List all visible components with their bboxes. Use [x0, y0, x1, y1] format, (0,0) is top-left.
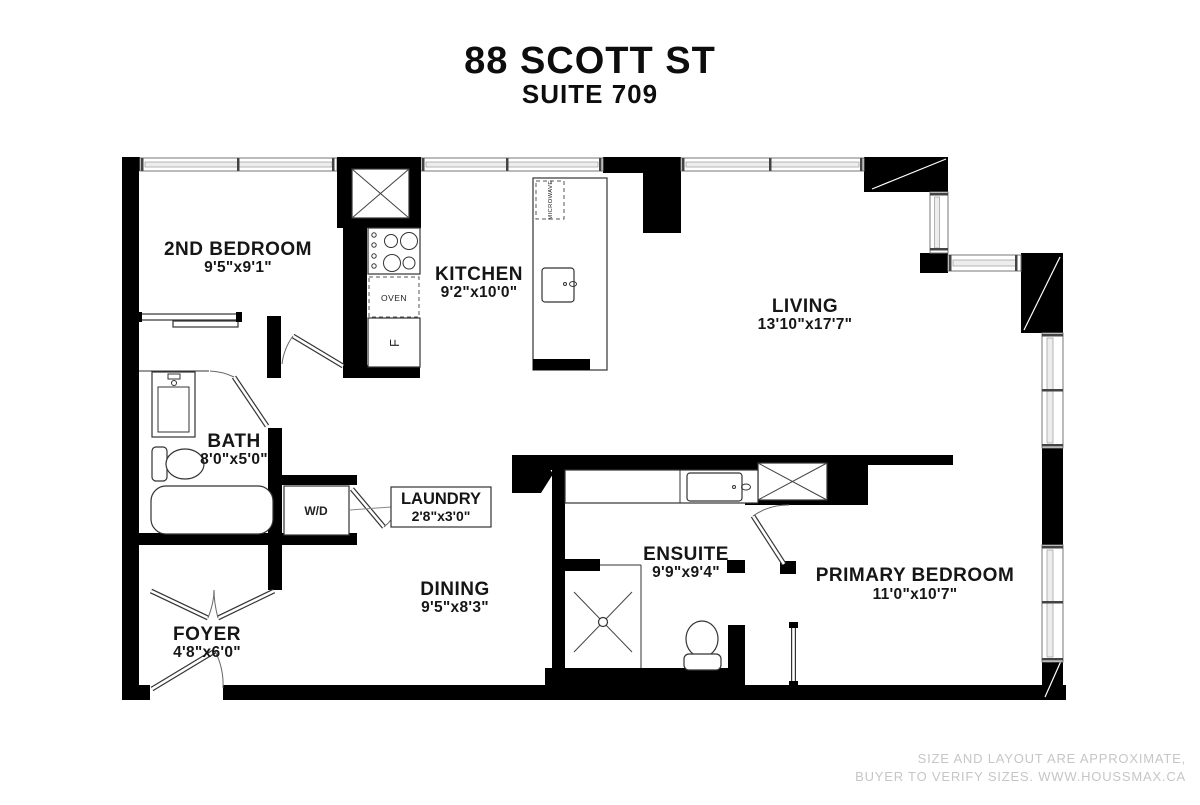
label-foyer: FOYER	[173, 624, 241, 645]
label-primary-bedroom: PRIMARY BEDROOM	[816, 565, 1015, 586]
window-glass	[935, 197, 940, 248]
foyer-closet-door-left	[151, 591, 208, 618]
watermark-line2: BUYER TO VERIFY SIZES. WWW.HOUSSMAX.CA	[855, 769, 1186, 784]
dims-second-bedroom: 9'5"x9'1"	[204, 259, 272, 276]
floor-plan-page: 88 SCOTT ST SUITE 709	[0, 0, 1200, 805]
foyer-closet-door-right	[218, 591, 274, 618]
watermark-line1: SIZE AND LAYOUT ARE APPROXIMATE,	[918, 751, 1186, 766]
dims-ensuite: 9'9"x9'4"	[652, 564, 720, 581]
wall-living-primary	[868, 455, 953, 465]
entry-opening	[150, 685, 223, 700]
label-ensuite: ENSUITE	[643, 544, 729, 565]
microwave-label: MICROWAVE	[548, 180, 554, 219]
wall-east-a	[1042, 448, 1063, 547]
label-kitchen: KITCHEN	[435, 264, 523, 285]
ensuite-toilet-bowl	[686, 621, 718, 657]
wall-laundry-north	[268, 475, 357, 485]
wall-kitchen-west	[343, 228, 367, 368]
ensuite-door	[753, 516, 784, 564]
wall-ensuite-north	[540, 455, 758, 470]
dims-laundry: 2'8"x3'0"	[412, 508, 471, 524]
watermark: SIZE AND LAYOUT ARE APPROXIMATE, BUYER T…	[855, 751, 1186, 784]
dims-kitchen: 9'2"x10'0"	[441, 284, 518, 301]
fridge-label: F	[387, 339, 402, 347]
second-bedroom-door	[293, 336, 343, 366]
stub-shower	[565, 559, 600, 571]
ensuite-sink	[687, 473, 742, 501]
toilet-bowl	[166, 449, 204, 479]
block-east-small	[920, 253, 948, 273]
floor-plan: 88 SCOTT ST SUITE 709	[0, 0, 1200, 805]
label-laundry: LAUNDRY	[401, 490, 481, 508]
page-subtitle: SUITE 709	[522, 79, 658, 109]
label-second-bedroom: 2ND BEDROOM	[164, 239, 312, 260]
wall-closet-stub	[267, 316, 281, 378]
label-dining: DINING	[420, 579, 490, 600]
window-glass	[426, 162, 598, 167]
island-base	[533, 359, 590, 370]
dims-bath: 8'0"x5'0"	[200, 451, 268, 468]
shower-head-icon	[599, 618, 608, 627]
column-north-b	[643, 157, 681, 233]
window-glass	[686, 162, 859, 167]
page-title: 88 SCOTT ST	[464, 40, 716, 82]
closet-slider-b	[173, 321, 238, 327]
dims-living: 13'10"x17'7"	[758, 316, 853, 333]
ensuite-toilet-base	[684, 654, 721, 670]
wall-ensuite-west	[552, 463, 565, 693]
wall-corner-nw	[122, 157, 140, 171]
dims-primary-bedroom: 11'0"x10'7"	[873, 586, 958, 603]
window-glass	[953, 260, 1016, 266]
bath-door	[234, 377, 267, 426]
washer-dryer-label: W/D	[304, 504, 328, 518]
dims-dining: 9'5"x8'3"	[421, 599, 489, 616]
toilet-tank	[152, 447, 167, 481]
label-living: LIVING	[772, 296, 838, 317]
closet-slider-a	[139, 314, 238, 320]
bathtub	[151, 486, 273, 534]
wall-west	[122, 157, 139, 698]
stub-ensuite	[727, 560, 745, 573]
wall-south	[122, 685, 1066, 700]
label-bath: BATH	[207, 431, 260, 452]
dims-foyer: 4'8"x6'0"	[173, 644, 241, 661]
oven-label: OVEN	[381, 293, 407, 303]
wall-ensuite-east	[728, 625, 745, 685]
